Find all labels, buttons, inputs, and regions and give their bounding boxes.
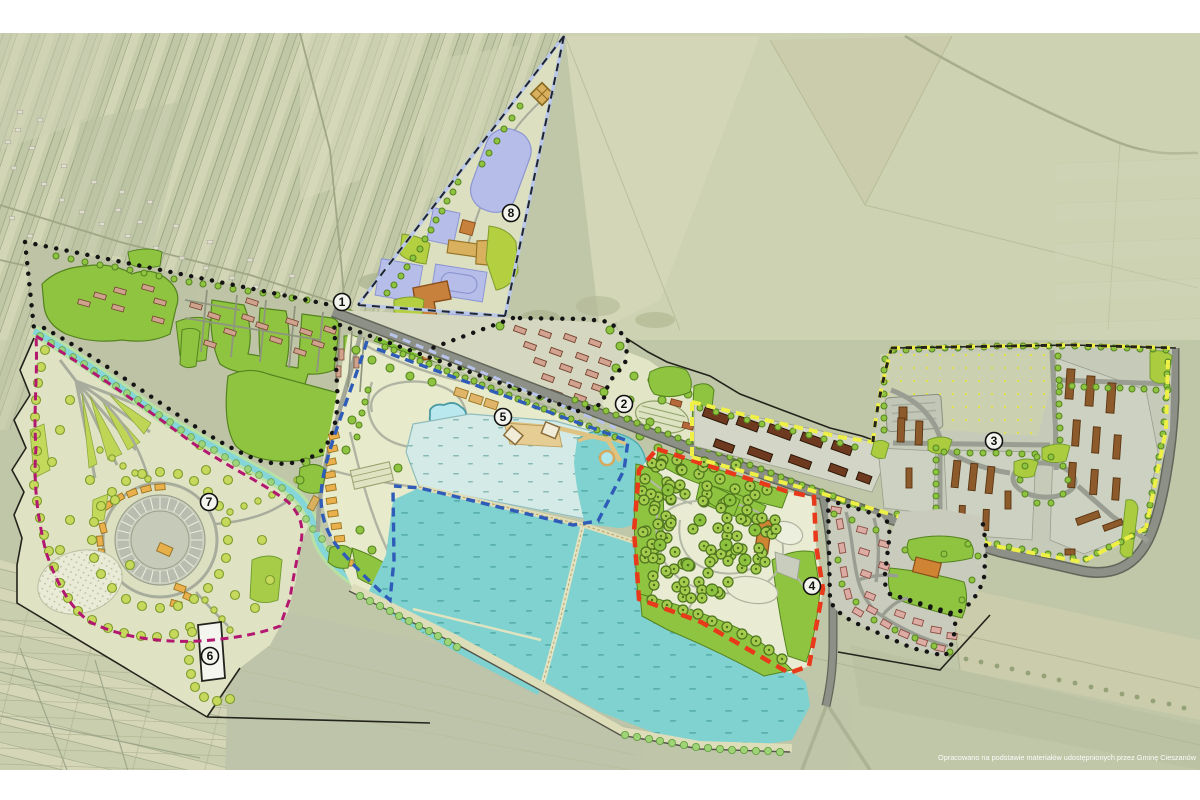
svg-text:2: 2 bbox=[621, 397, 628, 411]
svg-text:7: 7 bbox=[206, 495, 213, 509]
svg-text:3: 3 bbox=[991, 434, 998, 448]
svg-text:4: 4 bbox=[809, 579, 816, 593]
svg-text:6: 6 bbox=[207, 649, 214, 663]
svg-text:8: 8 bbox=[508, 206, 515, 220]
svg-text:1: 1 bbox=[339, 295, 346, 309]
svg-text:5: 5 bbox=[500, 410, 507, 424]
svg-text:Opracowano na podstawie materi: Opracowano na podstawie materiałów udost… bbox=[938, 753, 1197, 762]
